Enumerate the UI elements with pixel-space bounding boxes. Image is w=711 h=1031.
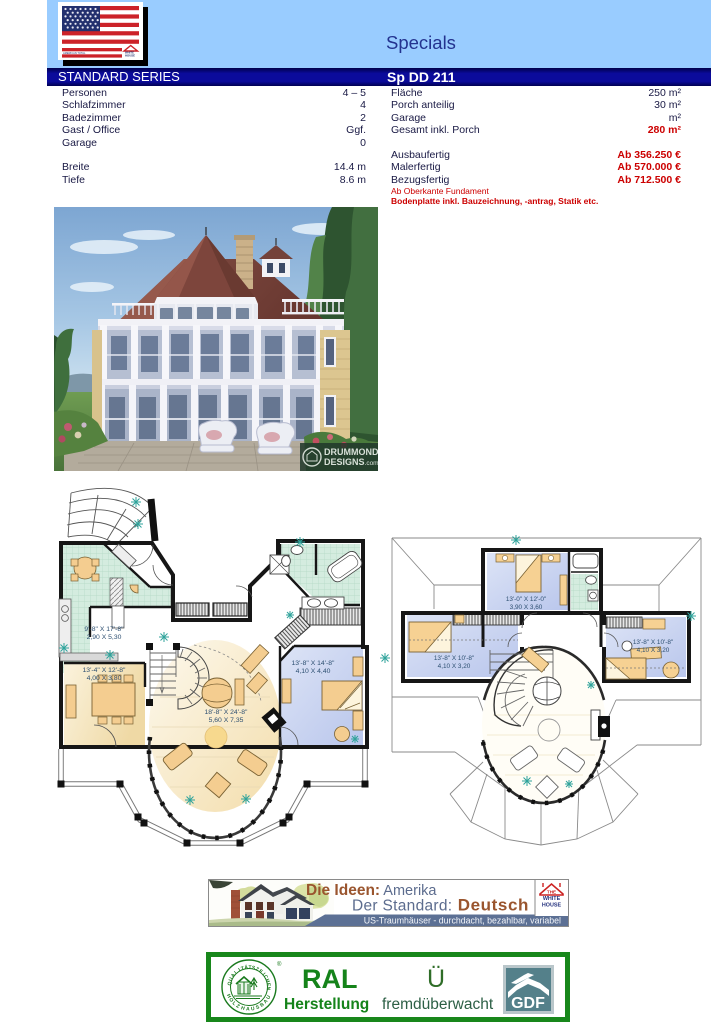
svg-text:US-Traumhäuser - durchdacht, b: US-Traumhäuser - durchdacht, bezahlbar, …: [364, 916, 561, 926]
svg-text:HOUSE: HOUSE: [125, 54, 135, 58]
svg-text:4,10 X 3,20: 4,10 X 3,20: [438, 663, 471, 670]
svg-text:A: A: [246, 1006, 250, 1012]
svg-text:fremdüberwacht: fremdüberwacht: [382, 996, 494, 1013]
svg-text:4,10 X 4,40: 4,10 X 4,40: [296, 668, 331, 675]
svg-text:AMERICAN TOTAL: AMERICAN TOTAL: [63, 51, 86, 55]
svg-text:Die Ideen: Amerika: Die Ideen: Amerika: [306, 882, 437, 899]
svg-text:RAL: RAL: [302, 964, 358, 994]
svg-text:13'-0" X 12'-0": 13'-0" X 12'-0": [506, 596, 546, 603]
svg-text:13'-4" X 12'-8": 13'-4" X 12'-8": [83, 667, 127, 674]
svg-text:18'-8" X 24'-8": 18'-8" X 24'-8": [205, 709, 249, 716]
svg-text:GDF: GDF: [511, 995, 545, 1012]
svg-text:Herstellung: Herstellung: [284, 996, 369, 1013]
svg-text:Der Standard: Deutsch: Der Standard: Deutsch: [352, 896, 529, 915]
svg-text:2,90 X 5,30: 2,90 X 5,30: [87, 634, 122, 641]
svg-text:4,10 X 3,20: 4,10 X 3,20: [637, 647, 670, 654]
svg-text:THE: THE: [547, 890, 556, 895]
svg-text:DRUMMOND: DRUMMOND: [324, 447, 378, 457]
svg-text:13'-8" X 10'-8": 13'-8" X 10'-8": [633, 639, 673, 646]
svg-text:4,00 X 3,80: 4,00 X 3,80: [87, 675, 122, 682]
svg-text:5,60 X 7,35: 5,60 X 7,35: [209, 717, 244, 724]
svg-text:Ü: Ü: [427, 965, 445, 993]
svg-text:HOUSE: HOUSE: [542, 903, 562, 909]
svg-text:9'-8" X 17'-8": 9'-8" X 17'-8": [84, 626, 124, 633]
svg-text:WHITE: WHITE: [543, 896, 561, 902]
svg-text:13'-8" X 10'-8": 13'-8" X 10'-8": [434, 655, 474, 662]
svg-text:3,90 X 3,60: 3,90 X 3,60: [510, 604, 543, 611]
svg-text:13'-8" X 14'-8": 13'-8" X 14'-8": [292, 660, 336, 667]
svg-text:®: ®: [277, 961, 282, 968]
